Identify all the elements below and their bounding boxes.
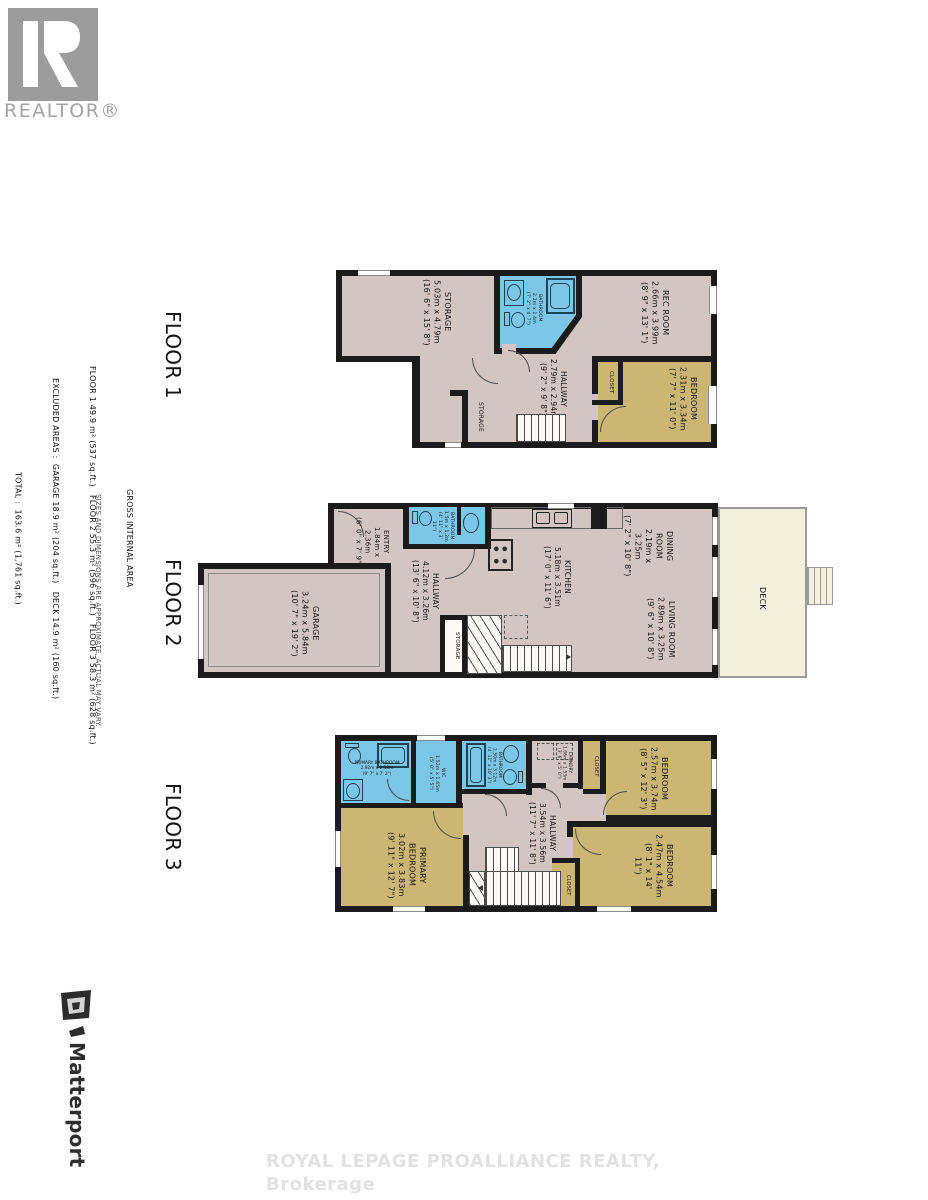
room-label-entry: ENTRY 1.84m x 2.36m (6' 0" x 7' 9") bbox=[356, 515, 390, 569]
room-dim: 1.5m x 1.2m bbox=[442, 509, 448, 543]
room-dim: 2.19m x 3.25m bbox=[632, 515, 653, 577]
room-dim: 2.31m x 3.34m bbox=[677, 364, 688, 434]
wall bbox=[567, 821, 711, 827]
room-dim: (11' 7" x 11' 8") bbox=[527, 797, 537, 869]
room-label-hallway: HALLWAY 3.54m x 3.56m (11' 7" x 11' 8") bbox=[519, 797, 557, 869]
garage-door bbox=[198, 585, 204, 659]
wall bbox=[592, 420, 598, 442]
deck-steps bbox=[807, 567, 833, 605]
room-name: LAUNDRY bbox=[567, 744, 573, 782]
sliding-door bbox=[712, 557, 718, 597]
bathtub-icon bbox=[550, 283, 570, 309]
room-label-rec-room: REC ROOM 2.66m x 3.99m (8' 9" x 13' 1") bbox=[624, 280, 670, 346]
room-dim: 2.57m x 3.74m bbox=[648, 747, 659, 811]
toilet-icon bbox=[504, 312, 510, 326]
window bbox=[708, 386, 717, 424]
wall bbox=[592, 400, 623, 405]
room-dim: (6' 0" x 7' 9") bbox=[353, 515, 362, 569]
floor1-title: FLOOR 1 bbox=[156, 308, 186, 402]
room-label-kitchen: KITCHEN 5.18m x 3.51m (17' 0" x 11' 6") bbox=[530, 545, 572, 609]
room-dim: (13' 6" x 10' 8") bbox=[410, 557, 420, 625]
room-dim: 5.18m x 3.51m bbox=[552, 545, 562, 609]
window bbox=[417, 735, 445, 741]
room-label-storage: STORAGE bbox=[447, 625, 460, 667]
floor1-plan: BATHROOM 2.2m x 1.4m (7' 2" x 4' 7") STO… bbox=[336, 270, 717, 448]
room-name: ENTRY bbox=[381, 515, 390, 569]
room-dim: 1.84m x 2.36m bbox=[362, 515, 380, 569]
stairs bbox=[502, 645, 572, 672]
room-name: CLOSET bbox=[592, 747, 599, 785]
window bbox=[393, 906, 425, 912]
summary-total-line: TOTAL : 163.6 m² (1,761 sq.ft.) bbox=[11, 366, 23, 711]
room-dim: 2.66m x 3.99m bbox=[649, 280, 660, 346]
stairs-arrow bbox=[566, 654, 571, 660]
room-name: CLOSET bbox=[607, 365, 614, 399]
room-name: STORAGE bbox=[476, 394, 484, 440]
room-dim: (8' 5" x 12' 3") bbox=[637, 747, 648, 811]
room-name: DECK bbox=[756, 583, 767, 613]
wall bbox=[583, 789, 606, 794]
stairs bbox=[485, 871, 561, 906]
room-dim: (8' 1" x 14' 11") bbox=[632, 833, 653, 899]
stairs-arrow bbox=[478, 885, 483, 891]
room-label-laundry: LAUNDRY 1.06m x 1.53m (3' 6" x 5' 0") bbox=[557, 744, 573, 782]
window bbox=[548, 503, 574, 509]
wall bbox=[341, 803, 463, 808]
room-label-understairs-storage: STORAGE bbox=[470, 394, 484, 440]
window bbox=[597, 906, 631, 912]
window bbox=[709, 286, 717, 314]
wall bbox=[462, 789, 532, 794]
room-name: KITCHEN bbox=[562, 545, 572, 609]
room-name: HALLWAY bbox=[558, 358, 568, 420]
room-dim: 3.24m x 5.84m bbox=[299, 588, 310, 658]
room-dim: (9' 7" x 7' 2") bbox=[345, 772, 409, 777]
brokerage-watermark: ROYAL LEPAGE PROALLIANCE REALTY, Brokera… bbox=[266, 1151, 666, 1196]
sink-icon bbox=[503, 745, 519, 763]
wall bbox=[336, 356, 420, 362]
matterport-cube-icon bbox=[58, 988, 94, 1042]
room-label-wic: WIC 1.52m x 1.65m (5' 0" x 5' 5") bbox=[427, 751, 445, 795]
toilet-icon bbox=[511, 312, 525, 328]
room-label-bedroom: BEDROOM 2.57m x 3.74m (8' 5" x 12' 3") bbox=[625, 747, 669, 811]
sink-icon bbox=[346, 783, 360, 799]
room-name: BATHROOM bbox=[448, 509, 454, 543]
room-dim: 2.2m x 1.4m bbox=[530, 282, 536, 334]
room-name: BEDROOM bbox=[663, 833, 674, 899]
room-name: BATHROOM bbox=[497, 745, 503, 785]
room-label-bedroom: BEDROOM 2.47m x 4.54m (8' 1" x 14' 11") bbox=[628, 833, 674, 899]
room-name: PRIMARY bbox=[416, 829, 427, 901]
room-label-bathroom: BATHROOM 1.5m x 1.2m (4' 11" x 3' 11") bbox=[436, 509, 454, 543]
wall bbox=[591, 503, 607, 529]
wall bbox=[412, 356, 420, 448]
room-name: HALLWAY bbox=[430, 557, 440, 625]
floor2-title: FLOOR 2 bbox=[156, 556, 186, 650]
room-name: LIVING ROOM bbox=[665, 595, 676, 663]
room-dim: (9' 2" x 9' 8") bbox=[538, 358, 548, 420]
sink-icon bbox=[507, 284, 521, 301]
room-dim: 1.06m x 1.53m bbox=[562, 744, 568, 782]
room-label-living-room: LIVING ROOM 2.89m x 3.25m (9' 6" x 10' 8… bbox=[634, 595, 676, 663]
room-dim: 5.03m x 4.79m bbox=[431, 278, 442, 346]
room-dim: 3.54m x 3.56m bbox=[537, 797, 547, 869]
room-name: REC ROOM bbox=[659, 280, 670, 346]
room-label-hallway: HALLWAY 4.12m x 3.26m (13' 6" x 10' 8") bbox=[402, 557, 440, 625]
room-dim: (4' 11" x 3' 11") bbox=[430, 509, 442, 543]
room-label-primary-bedroom: PRIMARY BEDROOM 3.02m x 3.83m (9' 11" x … bbox=[377, 829, 427, 901]
room-name: DINING bbox=[663, 515, 674, 577]
room-label-bedroom: BEDROOM 2.31m x 3.34m (7' 7" x 11' 0") bbox=[652, 364, 698, 434]
summary-title: GROSS INTERNAL AREA bbox=[123, 366, 135, 711]
matterport-logo bbox=[58, 988, 94, 1046]
floor3-title: FLOOR 3 bbox=[156, 780, 186, 874]
toilet-icon bbox=[412, 511, 418, 524]
room-dim: (5' 0" x 5' 5") bbox=[427, 751, 433, 795]
sink-icon bbox=[463, 513, 479, 533]
room-name: BATHROOM bbox=[536, 282, 542, 334]
wall bbox=[575, 863, 580, 906]
room-dim: 2.79m x 2.94m bbox=[548, 358, 558, 420]
room-dim: 2.47m x 4.54m bbox=[653, 833, 664, 899]
floor2-plan: BATHROOM 1.5m x 1.2m (4' 11" x 3' 11") E… bbox=[198, 503, 835, 678]
toilet-icon bbox=[503, 769, 517, 785]
window bbox=[358, 270, 390, 276]
room-name: STORAGE bbox=[453, 625, 460, 667]
appliance-dashed bbox=[504, 615, 528, 639]
room-dim: 1.50m x 3.12m bbox=[492, 745, 498, 785]
room-label-primary-bathroom: PRIMARY BATHROOM 2.92m x 2.18m (9' 7" x … bbox=[345, 761, 409, 779]
wall bbox=[592, 356, 711, 362]
room-name: ROOM bbox=[653, 515, 664, 577]
room-name: BEDROOM bbox=[687, 364, 698, 434]
room-label-deck: DECK bbox=[749, 583, 767, 613]
room-dim: 3.02m x 3.83m bbox=[395, 829, 406, 901]
room-dim: (17' 0" x 11' 6") bbox=[542, 545, 552, 609]
kitchen-sink-icon bbox=[536, 512, 550, 524]
stairs bbox=[516, 414, 566, 442]
room-dim: (9' 6" x 10' 8") bbox=[644, 595, 655, 663]
realtor-wordmark: REALTOR® bbox=[4, 100, 116, 124]
room-dim: 4.12m x 3.26m bbox=[420, 557, 430, 625]
stove-icon bbox=[488, 539, 513, 571]
room-name: STORAGE bbox=[441, 278, 452, 346]
room-dim: (7' 2" x 4' 7") bbox=[524, 282, 530, 334]
floor3-plan: PRIMARY BATHROOM 2.92m x 2.18m (9' 7" x … bbox=[335, 735, 717, 912]
realtor-r-icon bbox=[8, 8, 98, 101]
room-name: CLOSET bbox=[564, 867, 571, 903]
room-dim: (9' 11" x 12' 7") bbox=[385, 829, 396, 901]
toilet-icon bbox=[518, 771, 523, 783]
room-label-storage: STORAGE 5.03m x 4.79m (16' 6" x 15' 8") bbox=[408, 278, 452, 346]
size-disclaimer: SIZES AND DIMENSIONS ARE APPROXIMATE, AC… bbox=[88, 478, 102, 743]
room-name: GARAGE bbox=[309, 588, 320, 658]
room-dim: (10' 7" x 19' 2") bbox=[288, 588, 299, 658]
bathtub-icon bbox=[470, 747, 482, 783]
window bbox=[712, 629, 718, 665]
room-dim: (7' 2" x 10' 8") bbox=[621, 515, 632, 577]
room-dim: 2.89m x 3.25m bbox=[655, 595, 666, 663]
realtor-logo bbox=[8, 8, 98, 105]
window bbox=[445, 442, 461, 448]
matterport-wordmark: Matterport bbox=[58, 1042, 90, 1168]
window bbox=[335, 831, 341, 867]
gross-internal-area-summary: GROSS INTERNAL AREA FLOOR 1 49.9 m² (537… bbox=[104, 366, 160, 711]
stairs bbox=[485, 847, 519, 873]
room-name: BEDROOM bbox=[406, 829, 417, 901]
window bbox=[712, 517, 718, 545]
wall bbox=[450, 390, 468, 396]
wall bbox=[462, 390, 468, 442]
room-label-garage: GARAGE 3.24m x 5.84m (10' 7" x 19' 2") bbox=[278, 588, 320, 658]
room-label-bathroom: BATHROOM 1.50m x 3.12m (4' 11" x 10' 3") bbox=[485, 745, 503, 785]
room-dim: (3' 6" x 5' 0") bbox=[556, 744, 562, 782]
wall bbox=[457, 507, 461, 535]
room-name: BEDROOM bbox=[658, 747, 669, 811]
summary-excluded-line: EXCLUDED AREAS : GARAGE 18.9 m² (204 sq.… bbox=[48, 366, 60, 711]
room-name: HALLWAY bbox=[547, 797, 557, 869]
room-label-closet: CLOSET bbox=[598, 365, 614, 399]
wall bbox=[563, 783, 578, 788]
window bbox=[711, 759, 717, 789]
window bbox=[711, 855, 717, 889]
floor-plan-page: { "branding": { "realtor_text": "REALTOR… bbox=[0, 0, 928, 1200]
stairs-winder bbox=[467, 615, 502, 674]
wall bbox=[567, 827, 573, 837]
wall bbox=[618, 362, 623, 404]
room-dim: (8' 9" x 13' 1") bbox=[638, 280, 649, 346]
floor1-cutout bbox=[336, 356, 414, 448]
laundry-appliance-dashed bbox=[537, 743, 554, 760]
room-name: WIC bbox=[439, 751, 445, 795]
room-label-dining-room: DINING ROOM 2.19m x 3.25m (7' 2" x 10' 8… bbox=[628, 515, 674, 577]
room-dim: (4' 11" x 10' 3") bbox=[486, 745, 492, 785]
room-dim: (7' 7" x 11' 0") bbox=[666, 364, 677, 434]
room-label-hallway: HALLWAY 2.79m x 2.94m (9' 2" x 9' 8") bbox=[532, 358, 568, 420]
room-label-bathroom: BATHROOM 2.2m x 1.4m (7' 2" x 4' 7") bbox=[524, 282, 542, 334]
kitchen-sink-icon bbox=[554, 512, 568, 524]
room-label-closet: CLOSET bbox=[585, 747, 599, 785]
room-dim: 1.52m x 1.65m bbox=[433, 751, 439, 795]
room-dim: (16' 6" x 15' 8") bbox=[420, 278, 431, 346]
